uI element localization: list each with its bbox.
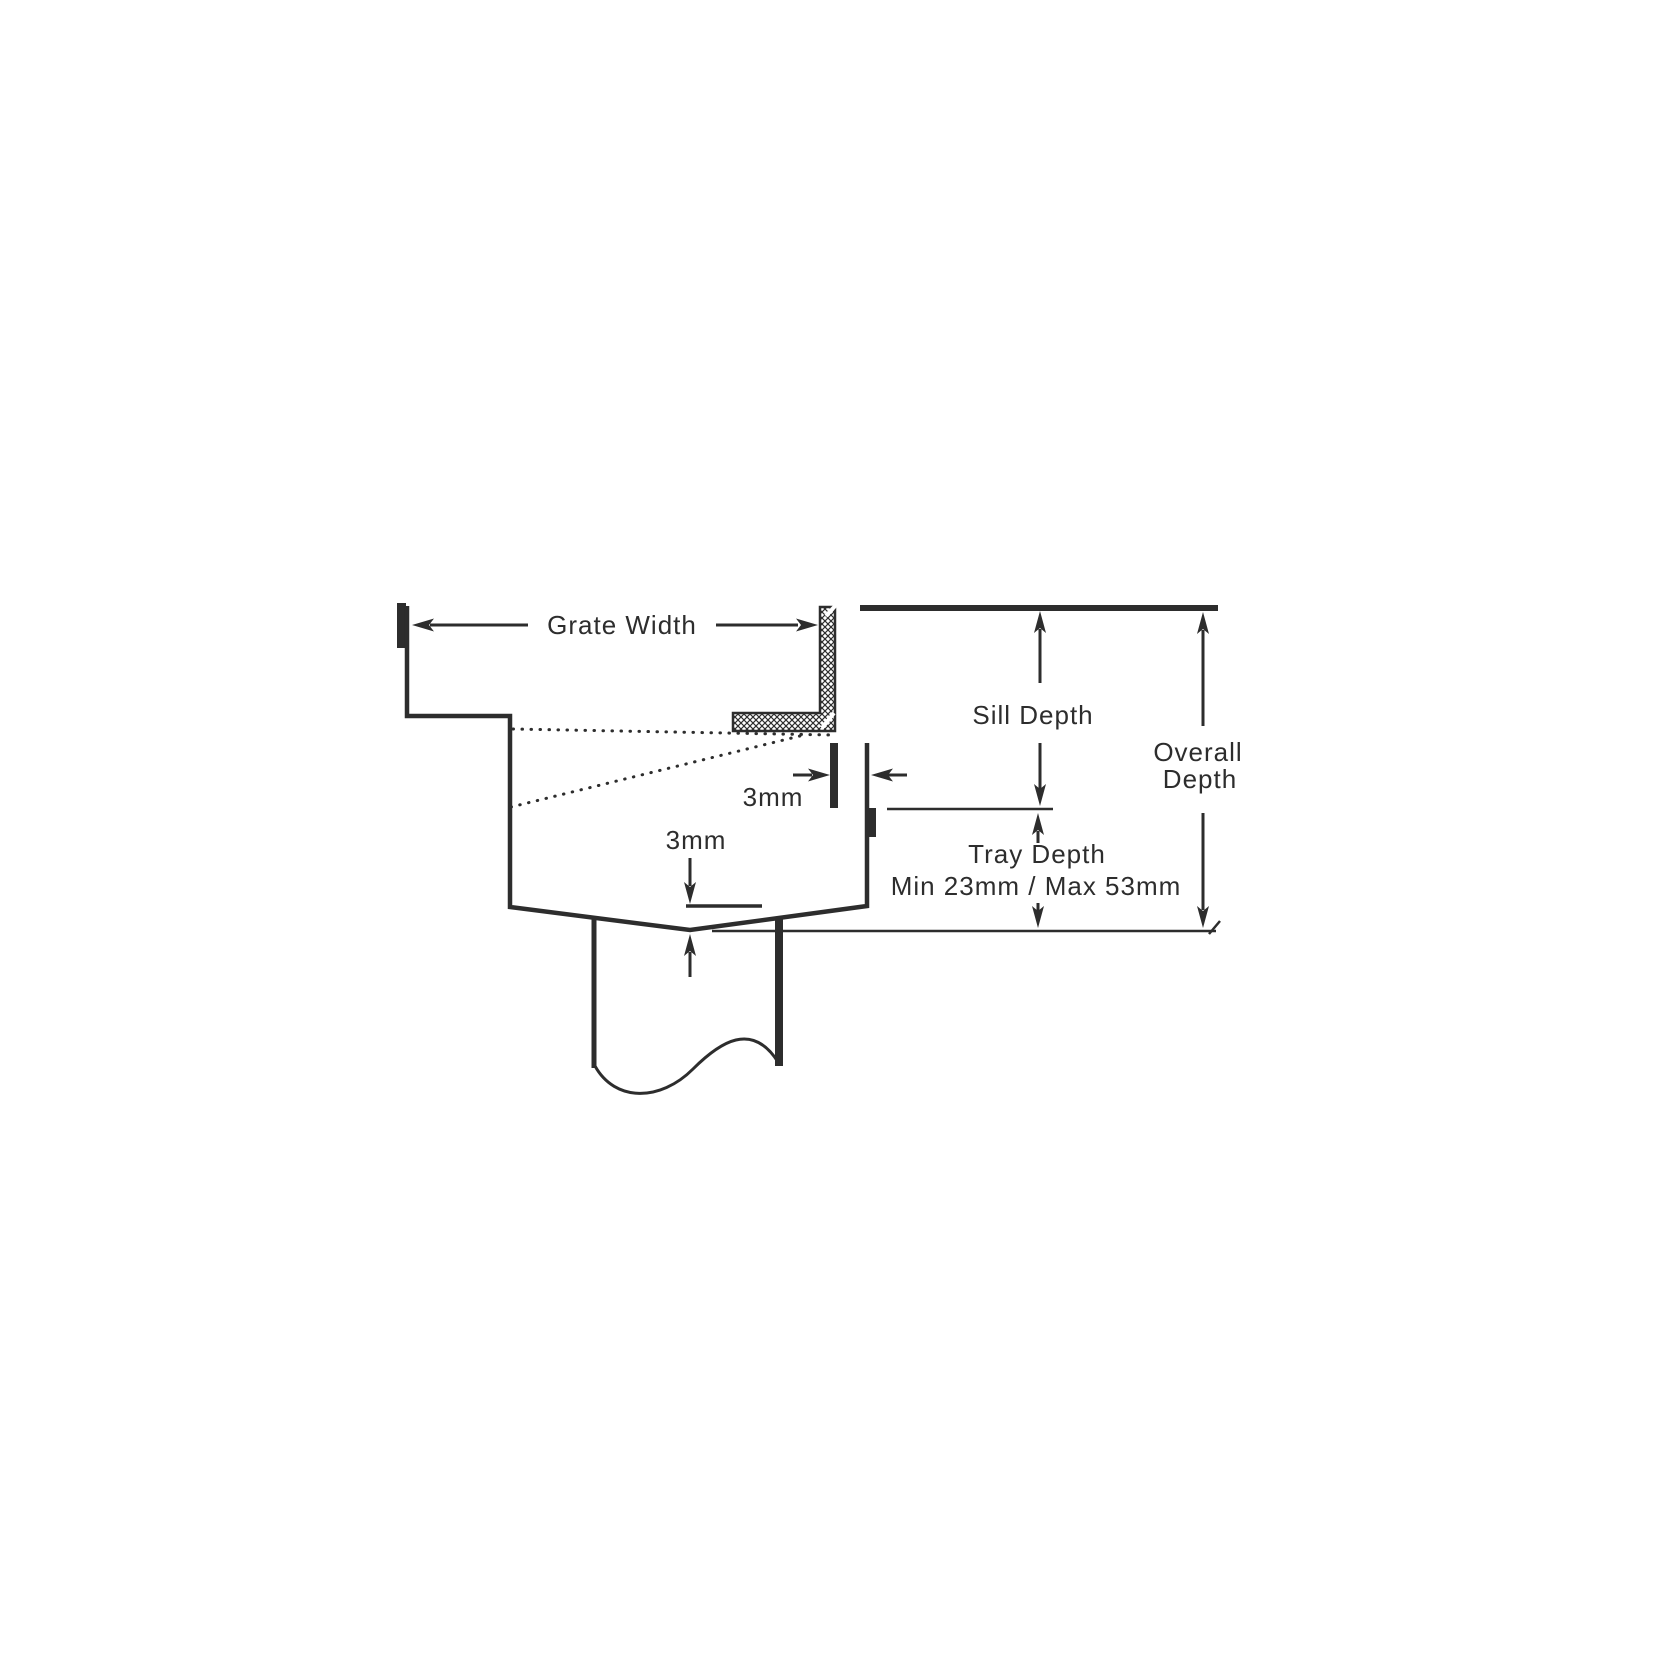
grate-width-label: Grate Width: [547, 610, 697, 640]
overall-depth-label-line2: Depth: [1163, 764, 1237, 794]
tray-depth-range-label: Min 23mm / Max 53mm: [891, 871, 1182, 901]
grate-right-edge-tick: [830, 743, 838, 808]
dim-sill-depth: Sill Depth: [972, 611, 1093, 806]
tray-depth-label: Tray Depth: [968, 839, 1106, 869]
tray-wall-sill-tick: [867, 808, 876, 837]
pipe-break-line: [595, 1039, 778, 1093]
tray-profile: [397, 603, 876, 930]
dim-gap-top-3mm: 3mm: [743, 769, 907, 813]
overall-depth-label-line1: Overall: [1153, 737, 1242, 767]
dim-grate-width: Grate Width: [412, 610, 818, 640]
page-background: Grate Width Sill Depth Overall Depth: [0, 0, 1676, 1676]
gap-top-label: 3mm: [743, 782, 804, 812]
grate-left-edge-tick: [397, 603, 406, 648]
dim-tray-depth: Tray Depth Min 23mm / Max 53mm: [891, 813, 1182, 928]
arrowhead-right-icon: [796, 619, 818, 632]
sill-depth-label: Sill Depth: [972, 700, 1093, 730]
dim-gap-bottom-3mm: 3mm: [666, 825, 762, 977]
drain-tray-cross-section-diagram: Grate Width Sill Depth Overall Depth: [0, 0, 1676, 1676]
tray-wall-outline: [407, 606, 867, 930]
gap-bottom-label: 3mm: [666, 825, 727, 855]
outlet-pipe: [594, 917, 779, 1093]
